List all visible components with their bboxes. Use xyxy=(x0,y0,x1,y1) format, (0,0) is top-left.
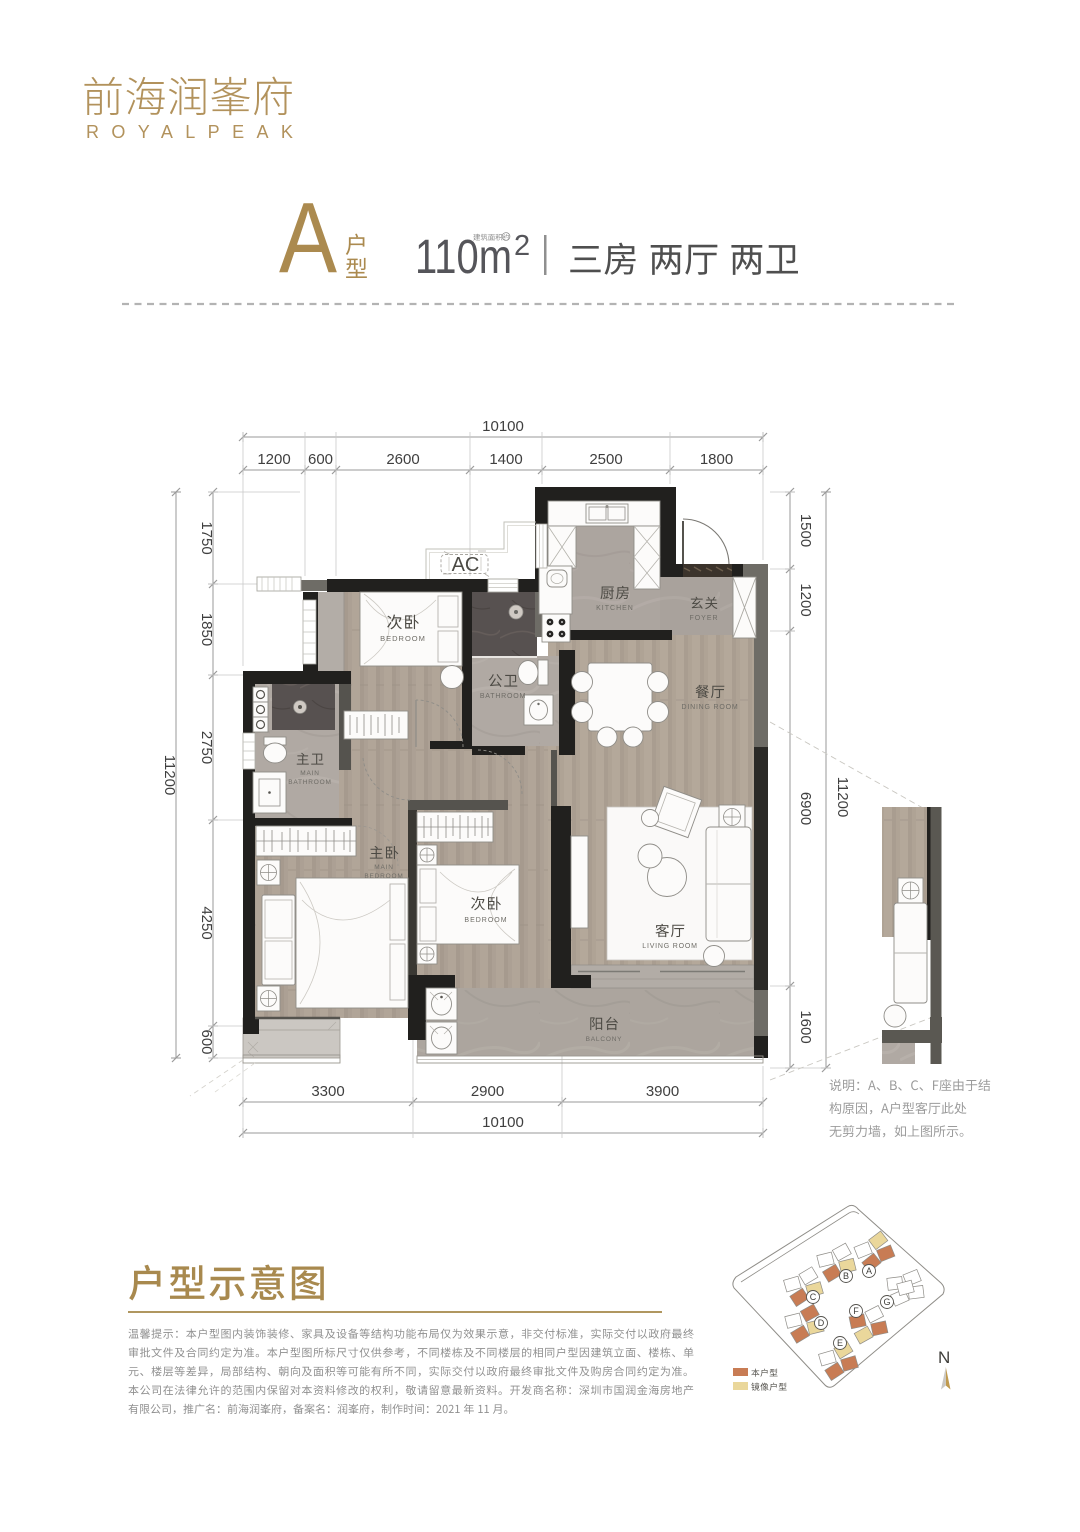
svg-text:1750: 1750 xyxy=(198,521,215,554)
svg-text:BEDROOM: BEDROOM xyxy=(464,917,507,924)
svg-text:6900: 6900 xyxy=(797,792,814,825)
svg-text:A: A xyxy=(279,182,337,294)
svg-text:E: E xyxy=(837,1338,843,1348)
svg-text:3300: 3300 xyxy=(311,1083,344,1100)
svg-text:A: A xyxy=(866,1266,872,1276)
svg-text:FOYER: FOYER xyxy=(689,615,718,622)
svg-text:10100: 10100 xyxy=(482,418,524,435)
svg-text:1200: 1200 xyxy=(257,451,290,468)
svg-text:110m: 110m xyxy=(415,231,512,284)
svg-text:AC: AC xyxy=(452,554,480,576)
svg-text:1200: 1200 xyxy=(797,583,814,616)
svg-text:BEDROOM: BEDROOM xyxy=(364,873,403,880)
svg-text:600: 600 xyxy=(308,451,333,468)
svg-text:N: N xyxy=(938,1348,950,1367)
svg-text:G: G xyxy=(883,1297,890,1307)
svg-text:2750: 2750 xyxy=(198,731,215,764)
svg-text:D: D xyxy=(818,1318,825,1328)
svg-text:ROYALPEAK: ROYALPEAK xyxy=(86,122,305,142)
svg-text:600: 600 xyxy=(198,1029,215,1054)
svg-text:10100: 10100 xyxy=(482,1114,524,1131)
svg-text:KITCHEN: KITCHEN xyxy=(596,605,634,612)
svg-text:11200: 11200 xyxy=(161,755,178,796)
svg-text:B: B xyxy=(843,1271,849,1281)
svg-text:1500: 1500 xyxy=(797,514,814,547)
svg-text:11200: 11200 xyxy=(834,777,851,818)
svg-text:3900: 3900 xyxy=(646,1083,679,1100)
svg-text:2500: 2500 xyxy=(589,451,622,468)
svg-text:F: F xyxy=(853,1306,859,1316)
svg-text:LIVING ROOM: LIVING ROOM xyxy=(642,943,697,950)
svg-text:2: 2 xyxy=(514,230,530,262)
svg-text:BATHROOM: BATHROOM xyxy=(480,693,526,700)
svg-text:MAIN: MAIN xyxy=(374,864,393,871)
svg-text:2600: 2600 xyxy=(386,451,419,468)
svg-text:4250: 4250 xyxy=(198,906,215,939)
svg-text:DINING ROOM: DINING ROOM xyxy=(681,704,738,711)
svg-text:2900: 2900 xyxy=(471,1083,504,1100)
svg-text:BALCONY: BALCONY xyxy=(586,1036,623,1043)
svg-text:1400: 1400 xyxy=(489,451,522,468)
svg-text:BEDROOM: BEDROOM xyxy=(380,634,426,643)
svg-text:1800: 1800 xyxy=(700,451,733,468)
svg-text:1600: 1600 xyxy=(797,1010,814,1043)
svg-text:C: C xyxy=(810,1292,817,1302)
svg-text:BATHROOM: BATHROOM xyxy=(288,779,331,786)
svg-text:1850: 1850 xyxy=(198,613,215,646)
svg-text:MAIN: MAIN xyxy=(300,770,319,777)
